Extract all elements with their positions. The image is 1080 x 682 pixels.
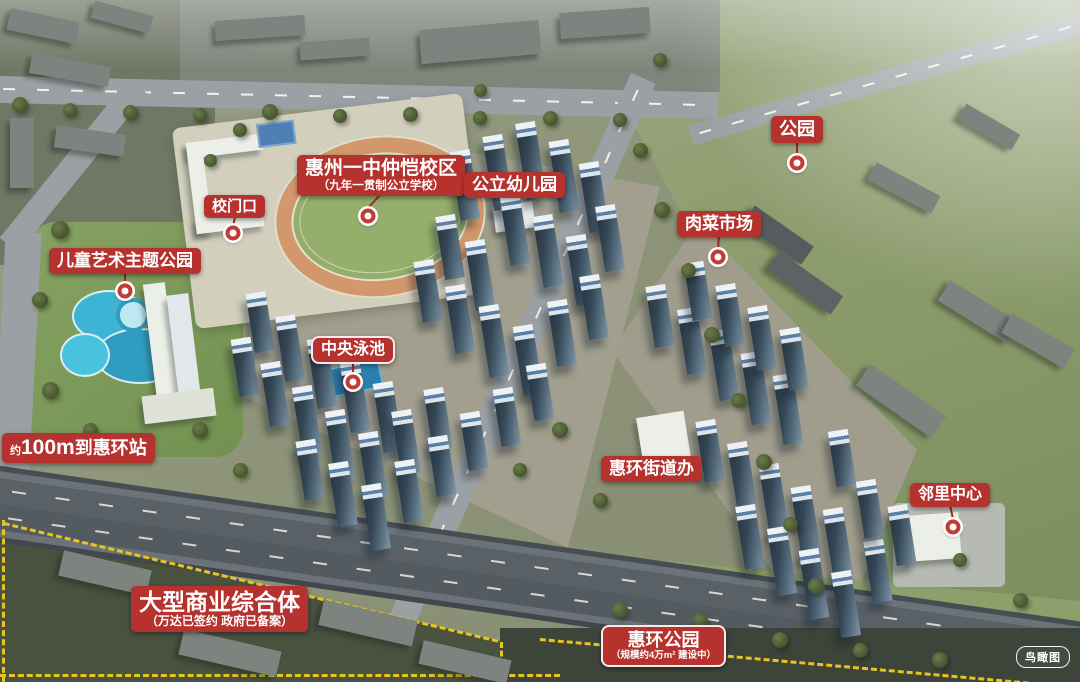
annotation-label: 公园	[779, 119, 815, 139]
boundary-dashed-left	[2, 520, 5, 682]
annotation-label: 肉菜市场	[685, 214, 753, 233]
annotation-label: 儿童艺术主题公园	[57, 251, 193, 270]
annotation-street-office: 惠环街道办	[601, 456, 702, 482]
tree-cluster	[853, 643, 868, 658]
annotation-huihuan-park: 惠环公园（规模约4万m² 建设中）	[601, 625, 726, 667]
annotation-label: 惠环公园	[628, 630, 700, 650]
annotation-label: 惠环街道办	[609, 459, 694, 478]
map-marker-school	[361, 209, 376, 224]
map-marker-park	[790, 156, 805, 171]
tree-cluster	[756, 454, 772, 470]
annotation-school-gate: 校门口	[204, 195, 265, 218]
annotation-label: 公立幼儿园	[472, 175, 557, 194]
tree-cluster	[403, 107, 418, 122]
tree-cluster	[12, 97, 28, 113]
tree-cluster	[123, 105, 138, 120]
tree-cluster	[333, 109, 347, 123]
tree-cluster	[543, 111, 558, 126]
annotation-distance: 100m	[21, 436, 75, 459]
tree-cluster	[612, 602, 628, 618]
aerial-rendering-scene: 鸟瞰图 惠州一中仲恺校区（九年一贯制公立学校）公立幼儿园校门口儿童艺术主题公园中…	[0, 0, 1080, 682]
map-marker-neighborhood-center	[946, 520, 961, 535]
annotation-commercial-complex: 大型商业综合体（万达已签约 政府已备案）	[131, 586, 308, 632]
map-marker-children-art-park	[118, 284, 133, 299]
annotation-prefix: 约	[10, 445, 21, 457]
tree-cluster	[193, 108, 207, 122]
annotation-children-art-park: 儿童艺术主题公园	[49, 248, 201, 274]
birdseye-view-stamp: 鸟瞰图	[1016, 646, 1070, 668]
tree-cluster	[593, 493, 608, 508]
annotation-label: 邻里中心	[918, 486, 982, 503]
annotation-market: 肉菜市场	[677, 211, 761, 237]
tree-cluster	[233, 123, 247, 137]
tree-cluster	[552, 422, 568, 438]
annotation-sublabel: （规模约4万m² 建设中）	[611, 651, 716, 662]
tree-cluster	[704, 327, 720, 343]
tree-cluster	[262, 104, 278, 120]
annotation-park: 公园	[771, 116, 823, 143]
tree-cluster	[51, 221, 69, 239]
marker-connector	[124, 272, 126, 283]
annotation-school: 惠州一中仲恺校区（九年一贯制公立学校）	[297, 155, 465, 196]
annotation-sublabel: （九年一贯制公立学校）	[305, 180, 457, 193]
tree-cluster	[783, 517, 798, 532]
tree-cluster	[953, 553, 967, 567]
lagoon-pool	[60, 333, 110, 377]
tree-cluster	[772, 632, 788, 648]
tree-cluster	[32, 292, 48, 308]
tree-cluster	[654, 202, 670, 218]
tree-cluster	[42, 382, 59, 399]
annotation-label: 中央泳池	[321, 341, 385, 358]
annotation-label: 校门口	[212, 198, 257, 215]
tree-cluster	[932, 652, 948, 668]
tree-cluster	[681, 263, 696, 278]
tree-cluster	[613, 113, 627, 127]
annotation-kindergarten: 公立幼儿园	[464, 172, 565, 198]
map-marker-market	[711, 250, 726, 265]
bottom-tree-strip	[500, 628, 1080, 682]
tree-cluster	[192, 422, 208, 438]
tree-cluster	[63, 103, 77, 117]
building-slab	[10, 118, 34, 188]
annotation-sublabel: （万达已签约 政府已备案）	[139, 615, 300, 629]
tree-cluster	[633, 143, 648, 158]
tree-cluster	[653, 53, 667, 67]
tree-cluster	[473, 111, 487, 125]
annotation-metro: 约100m到惠环站	[2, 433, 155, 463]
map-marker-central-pool	[346, 375, 361, 390]
annotation-label: 惠州一中仲恺校区	[305, 158, 457, 179]
tree-cluster	[233, 463, 248, 478]
tree-cluster	[731, 393, 746, 408]
map-marker-school-gate	[226, 226, 241, 241]
tree-cluster	[474, 84, 487, 97]
tree-cluster	[808, 578, 824, 594]
marker-connector	[796, 141, 798, 155]
atmospheric-haze	[0, 0, 1080, 70]
tree-cluster	[1013, 593, 1028, 608]
annotation-central-pool: 中央泳池	[311, 336, 395, 364]
annotation-suffix: 到惠环站	[75, 438, 147, 458]
tree-cluster	[204, 154, 217, 167]
tree-cluster	[513, 463, 527, 477]
sports-court	[256, 120, 297, 148]
annotation-neighborhood-center: 邻里中心	[910, 483, 990, 507]
annotation-label: 大型商业综合体	[139, 589, 300, 615]
